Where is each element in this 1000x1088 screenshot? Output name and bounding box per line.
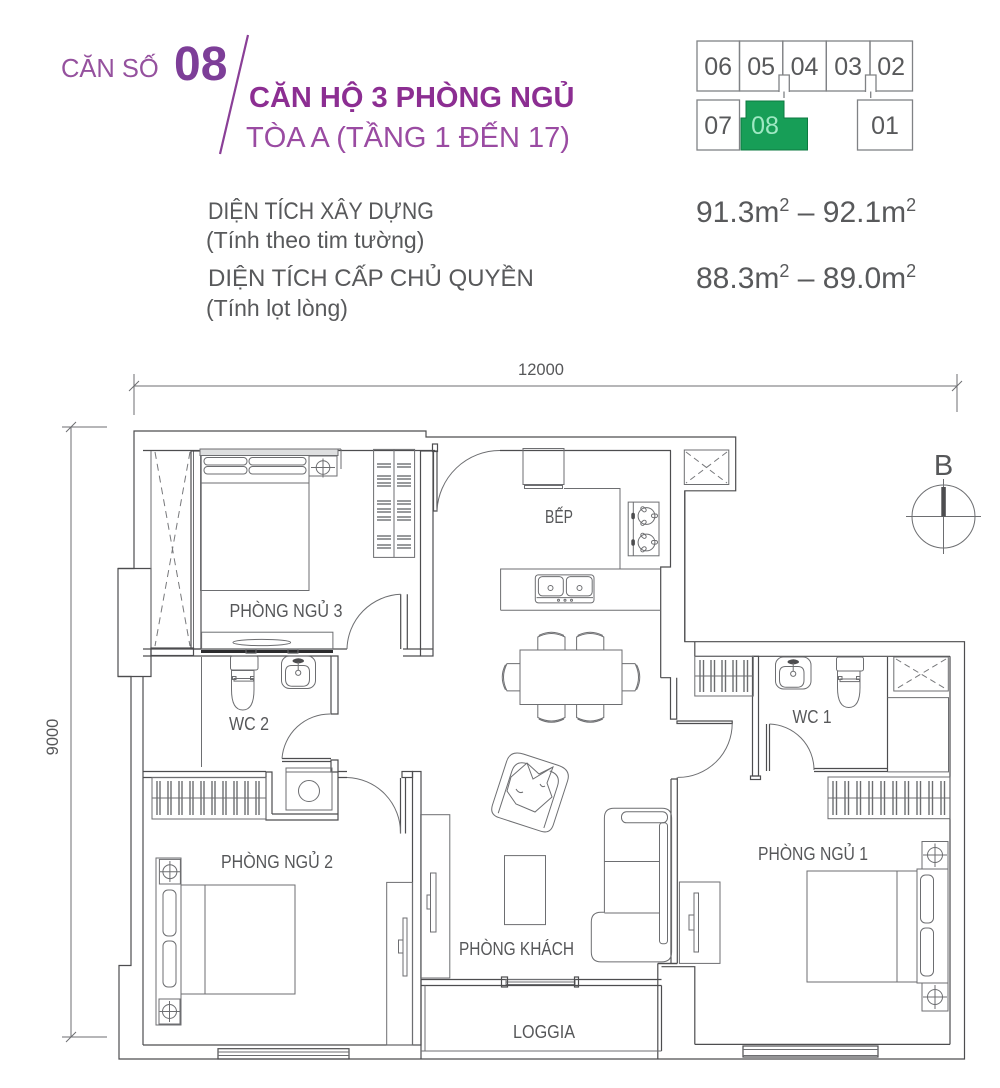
svg-text:PHÒNG KHÁCH: PHÒNG KHÁCH (459, 938, 574, 959)
svg-text:BẾP: BẾP (545, 506, 573, 527)
svg-text:WC 2: WC 2 (229, 714, 269, 734)
svg-text:PHÒNG NGỦ 3: PHÒNG NGỦ 3 (230, 600, 343, 621)
svg-text:B: B (934, 450, 953, 482)
svg-text:9000: 9000 (44, 719, 62, 756)
svg-text:12000: 12000 (518, 361, 564, 379)
svg-text:WC 1: WC 1 (793, 707, 832, 727)
svg-text:PHÒNG NGỦ 1: PHÒNG NGỦ 1 (758, 843, 868, 864)
svg-text:LOGGIA: LOGGIA (513, 1022, 575, 1042)
svg-text:PHÒNG NGỦ 2: PHÒNG NGỦ 2 (221, 851, 333, 872)
